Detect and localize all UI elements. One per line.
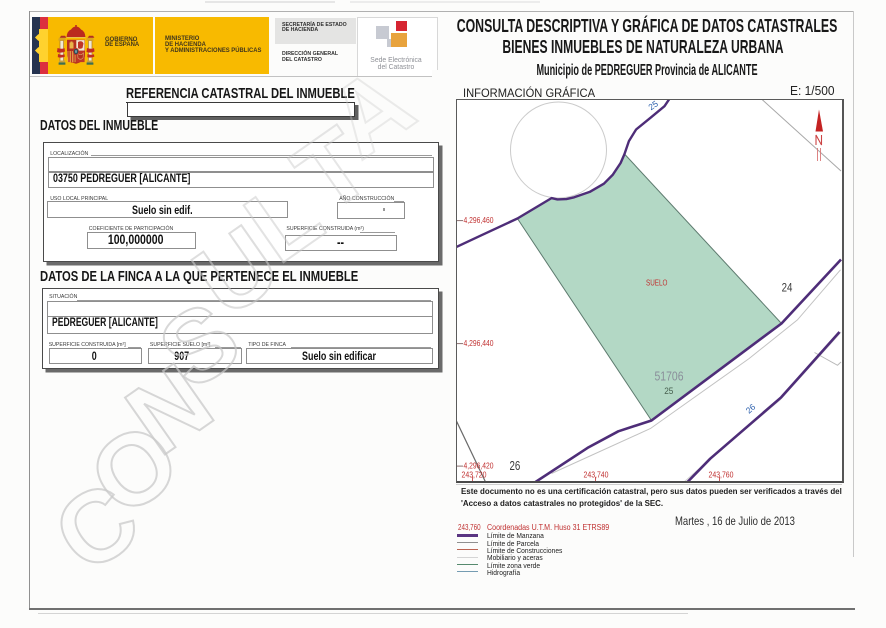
svg-text:4,296,420: 4,296,420: [463, 461, 493, 470]
svg-text:243,760: 243,760: [708, 470, 733, 479]
svg-text:26: 26: [509, 459, 520, 473]
svg-text:25: 25: [664, 385, 673, 396]
svg-text:24: 24: [781, 280, 792, 294]
svg-text:4,296,460: 4,296,460: [463, 216, 493, 225]
svg-text:4,296,440: 4,296,440: [463, 339, 493, 348]
svg-text:26: 26: [743, 401, 757, 415]
svg-text:243,740: 243,740: [583, 470, 608, 479]
svg-text:51706: 51706: [654, 368, 683, 383]
svg-text:243,720: 243,720: [461, 470, 486, 479]
svg-text:SUELO: SUELO: [646, 278, 667, 287]
